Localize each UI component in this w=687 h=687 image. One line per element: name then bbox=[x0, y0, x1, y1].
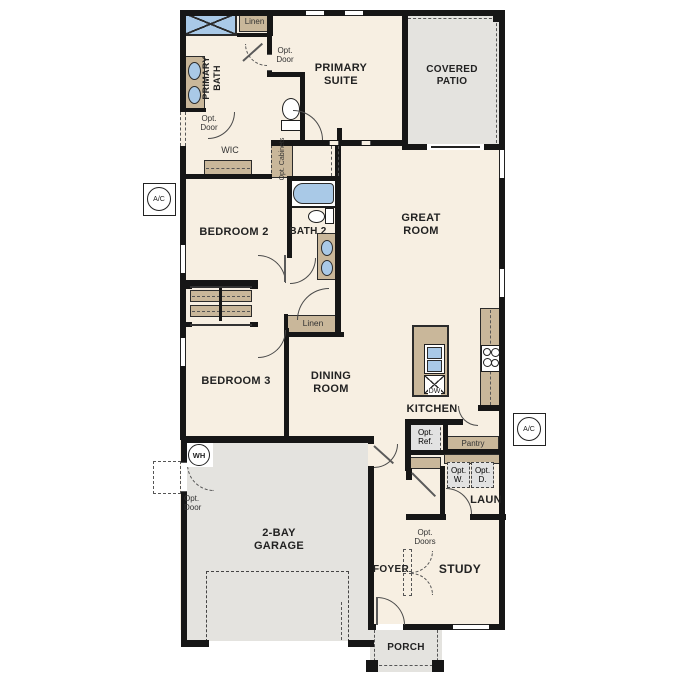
label-opt-door-garage: Opt. Door bbox=[184, 494, 212, 512]
label-opt-door-wic: Opt. Door bbox=[196, 114, 222, 132]
hall-arch-dashed bbox=[331, 146, 339, 176]
wall-right bbox=[499, 10, 505, 630]
porch-post-right bbox=[432, 660, 444, 672]
wall-patio-left bbox=[402, 10, 408, 150]
porch-post-left bbox=[366, 660, 378, 672]
label-great-room: GREAT ROOM bbox=[390, 212, 452, 238]
label-linen-primary: Linen bbox=[239, 17, 270, 26]
dishwasher-label-wrap: DW bbox=[424, 380, 445, 398]
wall-top bbox=[180, 10, 505, 16]
ac-left-circle: A/C bbox=[147, 187, 171, 211]
garage-door-dashed bbox=[206, 571, 349, 642]
wall-pantry-left bbox=[443, 423, 448, 451]
label-bedroom3: BEDROOM 3 bbox=[194, 375, 278, 388]
window-suite-top-2 bbox=[345, 10, 363, 16]
wall-garage-top bbox=[181, 436, 374, 443]
wall-bath-wic-divider bbox=[184, 108, 206, 112]
label-study: STUDY bbox=[432, 562, 488, 576]
ac-right-circle: A/C bbox=[517, 417, 541, 441]
closet-door-line-top bbox=[190, 286, 252, 288]
suite-wall-dash-1 bbox=[329, 141, 339, 145]
wall-garage-bottom-left bbox=[181, 640, 209, 647]
label-kitchen: KITCHEN bbox=[402, 403, 462, 416]
burner-4 bbox=[491, 359, 499, 367]
wall-wic-bottom bbox=[180, 174, 272, 179]
bedroom2-door-leaf bbox=[284, 255, 286, 282]
label-covered-patio: COVERED PATIO bbox=[418, 64, 486, 88]
patio-slider-door bbox=[427, 144, 484, 150]
burner-1 bbox=[483, 348, 491, 356]
ac-unit-right: A/C bbox=[513, 413, 546, 446]
floor-plan: Opt. Ref. Opt. W. Opt. D. bbox=[0, 0, 687, 687]
label-bath2: BATH 2 bbox=[288, 226, 328, 238]
wall-laundry-west bbox=[440, 466, 445, 516]
bath2-toilet-bowl bbox=[308, 210, 325, 223]
ac-unit-left: A/C bbox=[143, 183, 176, 216]
wall-nook-top bbox=[406, 450, 444, 455]
wall-bed3-dining-divider bbox=[284, 328, 289, 440]
ac-left-label: A/C bbox=[153, 196, 165, 203]
window-bedroom3 bbox=[180, 338, 186, 366]
closet-door-line-bottom bbox=[190, 324, 252, 326]
label-laundry: LAUN bbox=[466, 494, 506, 507]
label-porch: PORCH bbox=[380, 642, 432, 654]
label-linen-hall: Linen bbox=[290, 319, 336, 329]
label-foyer: FOYER bbox=[370, 564, 412, 576]
label-opt-door-toilet: Opt. Door bbox=[272, 46, 298, 64]
front-door-leaf bbox=[376, 597, 378, 625]
patio-slider-line bbox=[431, 146, 480, 148]
wall-linen-bottom bbox=[237, 33, 271, 37]
water-heater-label: WH bbox=[193, 451, 206, 460]
label-opt-doors-study: Opt. Doors bbox=[410, 528, 440, 546]
hall-closet-shelf bbox=[410, 457, 441, 469]
patio-corner-post bbox=[493, 10, 505, 22]
opt-ref-label: Opt. Ref. bbox=[411, 428, 440, 446]
label-pantry: Pantry bbox=[450, 439, 496, 448]
opt-refrigerator: Opt. Ref. bbox=[410, 422, 441, 451]
opt-door-wic-opening bbox=[180, 112, 186, 146]
laundry-door-opening bbox=[446, 514, 470, 520]
opt-dryer: Opt. D. bbox=[471, 462, 494, 488]
bath2-toilet-tank bbox=[325, 208, 334, 224]
label-opt-cabinets: Opt. Cabinets bbox=[271, 134, 295, 184]
wall-pantry-bottom bbox=[443, 449, 505, 454]
wall-kitchen-south bbox=[405, 419, 463, 425]
window-suite-top-1 bbox=[306, 10, 324, 16]
label-wic: WIC bbox=[210, 145, 250, 155]
wall-bed2-bath2-divider bbox=[287, 176, 292, 258]
label-garage: 2-BAY GARAGE bbox=[246, 527, 312, 553]
wall-garage-bottom-right bbox=[348, 640, 374, 647]
window-greatroom-2 bbox=[499, 269, 505, 297]
dishwasher-label: DW bbox=[428, 388, 442, 395]
garage-door-opening bbox=[209, 641, 348, 647]
window-greatroom-1 bbox=[499, 150, 505, 178]
wall-left bbox=[180, 10, 186, 440]
study-opt-door-leaf-bottom bbox=[403, 573, 412, 596]
ac-right-label: A/C bbox=[523, 426, 535, 433]
suite-wall-dash-2 bbox=[361, 141, 371, 145]
wall-kitchen-south-stub bbox=[405, 419, 411, 471]
bathtub bbox=[293, 183, 334, 204]
island-sink-basin-1 bbox=[427, 347, 442, 359]
window-study bbox=[453, 624, 489, 630]
window-bedroom2 bbox=[180, 245, 186, 273]
label-dining-room: DINING ROOM bbox=[298, 370, 364, 396]
water-heater: WH bbox=[188, 444, 210, 466]
wall-garage-right-lower bbox=[368, 466, 374, 630]
island-sink-basin-2 bbox=[427, 360, 442, 372]
opt-dryer-label: Opt. D. bbox=[472, 466, 493, 484]
bath2-sink-1 bbox=[321, 240, 333, 256]
opt-washer-label: Opt. W. bbox=[448, 466, 469, 484]
wic-shelf-line bbox=[206, 168, 250, 169]
wall-counter-bottom bbox=[478, 405, 505, 411]
opt-washer: Opt. W. bbox=[447, 462, 470, 488]
wall-linen2-bottom bbox=[284, 332, 344, 337]
bath2-sink-2 bbox=[321, 260, 333, 276]
label-bedroom2: BEDROOM 2 bbox=[192, 226, 276, 239]
label-primary-bath: PRIMARY BATH bbox=[197, 48, 227, 108]
closet-divider bbox=[219, 288, 222, 321]
label-primary-suite: PRIMARY SUITE bbox=[308, 62, 374, 88]
opt-side-door-dashed bbox=[153, 461, 181, 494]
